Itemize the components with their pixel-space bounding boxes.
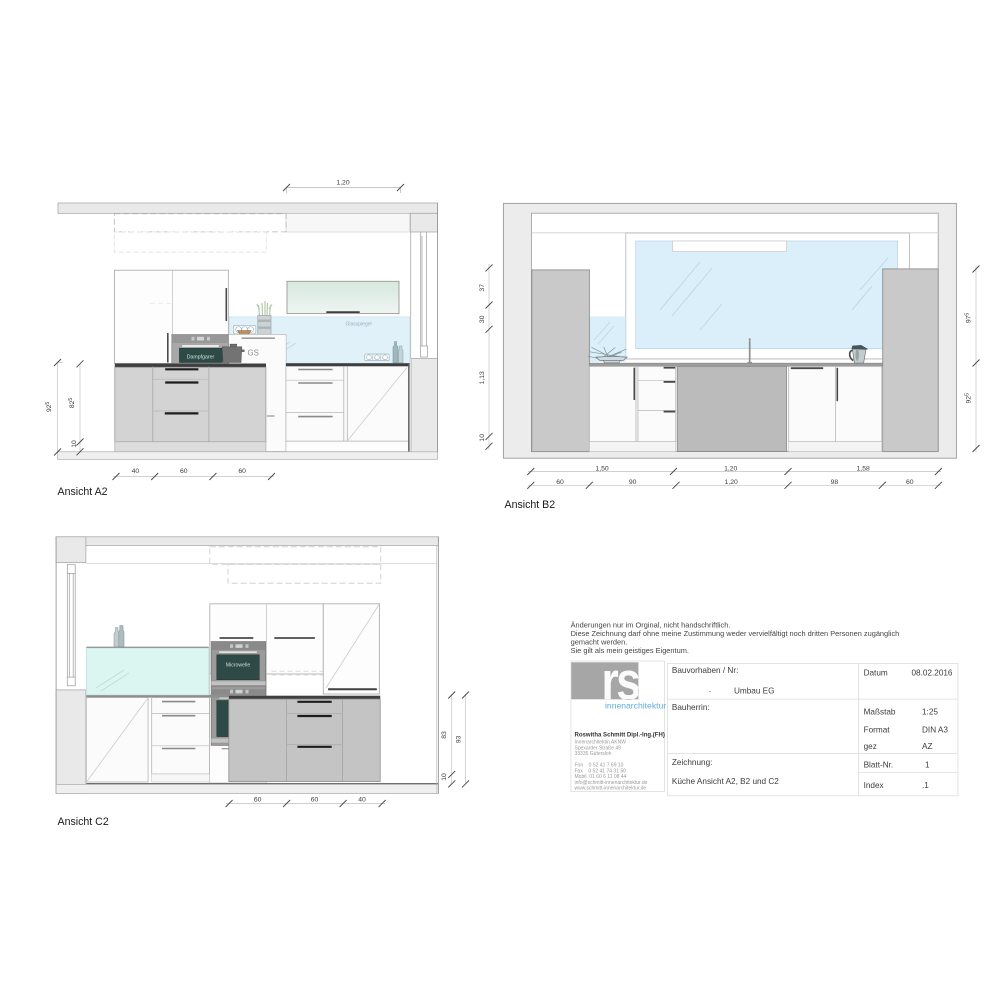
svg-text:innenarchitektur: innenarchitektur — [605, 701, 666, 711]
svg-text:1,58: 1,58 — [857, 465, 870, 472]
svg-text:10: 10 — [441, 773, 448, 781]
svg-text:Maßstab: Maßstab — [864, 708, 896, 717]
svg-text:1,20: 1,20 — [724, 465, 737, 472]
svg-text:Küche Ansicht A2, B2 und C2: Küche Ansicht A2, B2 und C2 — [672, 777, 779, 786]
svg-text:1: 1 — [925, 761, 930, 770]
svg-text:975: 975 — [965, 313, 973, 324]
svg-text:Umbau EG: Umbau EG — [734, 687, 775, 696]
svg-text:60: 60 — [254, 796, 262, 803]
svg-text:Zeichnung:: Zeichnung: — [672, 758, 713, 767]
svg-text:33335 Gütersloh: 33335 Gütersloh — [575, 751, 612, 757]
svg-text:1,20: 1,20 — [336, 180, 349, 187]
svg-text:90: 90 — [629, 479, 637, 486]
svg-text:825: 825 — [68, 398, 76, 409]
svg-text:1,13: 1,13 — [479, 371, 486, 384]
svg-text:Ansicht B2: Ansicht B2 — [505, 499, 556, 511]
svg-text:08.02.2016: 08.02.2016 — [912, 669, 953, 678]
svg-text:Format: Format — [864, 726, 891, 735]
svg-text:Datum: Datum — [864, 669, 888, 678]
svg-text:60: 60 — [311, 796, 319, 803]
svg-text:Bauvorhaben / Nr:: Bauvorhaben / Nr: — [672, 666, 738, 675]
svg-text:DIN A3: DIN A3 — [922, 726, 948, 735]
svg-text:60: 60 — [180, 468, 188, 475]
svg-text:-: - — [709, 690, 711, 696]
svg-text:93: 93 — [456, 736, 463, 744]
svg-text:Index: Index — [864, 781, 884, 790]
svg-text:AZ: AZ — [922, 742, 932, 751]
svg-text:60: 60 — [556, 479, 564, 486]
svg-text:60: 60 — [238, 468, 246, 475]
svg-text:Blatt-Nr.: Blatt-Nr. — [864, 761, 894, 770]
svg-text:Roswitha Schmitt Dipl.-Ing.(FH: Roswitha Schmitt Dipl.-Ing.(FH) — [575, 733, 665, 739]
svg-text:Dampfgarer: Dampfgarer — [187, 355, 215, 361]
svg-text:1,20: 1,20 — [725, 479, 738, 486]
svg-text:Bauherrin:: Bauherrin: — [672, 703, 710, 712]
svg-text:Microwelle: Microwelle — [226, 662, 251, 668]
svg-text:10: 10 — [71, 440, 78, 448]
svg-text:1,50: 1,50 — [595, 465, 608, 472]
svg-text:925: 925 — [45, 402, 53, 413]
svg-text:60: 60 — [906, 479, 914, 486]
svg-text:83: 83 — [441, 731, 448, 739]
svg-text:40: 40 — [132, 468, 140, 475]
svg-text:37: 37 — [479, 284, 486, 292]
svg-text:www.schmitt-innenarchitektur.d: www.schmitt-innenarchitektur.de — [575, 786, 647, 792]
svg-text:98: 98 — [831, 479, 839, 486]
svg-text:Ansicht C2: Ansicht C2 — [58, 816, 109, 828]
svg-text:GS: GS — [248, 349, 259, 358]
svg-text:.1: .1 — [922, 781, 929, 790]
svg-text:30: 30 — [479, 315, 486, 323]
svg-text:Ansicht A2: Ansicht A2 — [58, 486, 108, 498]
svg-text:925: 925 — [965, 393, 973, 404]
svg-text:gez: gez — [864, 742, 877, 751]
svg-text:40: 40 — [358, 796, 366, 803]
svg-text:Glasspiegel: Glasspiegel — [346, 321, 372, 327]
svg-text:1:25: 1:25 — [922, 708, 938, 717]
svg-text:10: 10 — [479, 434, 486, 442]
